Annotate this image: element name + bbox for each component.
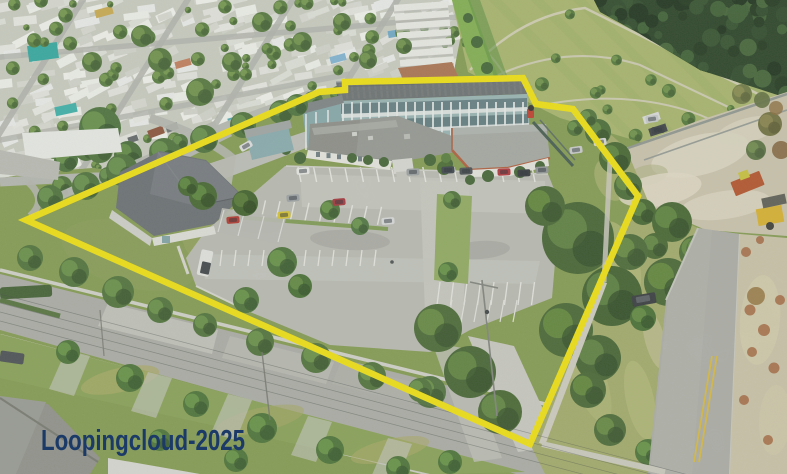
svg-text:Loopingcloud-2025: Loopingcloud-2025 <box>41 425 245 457</box>
